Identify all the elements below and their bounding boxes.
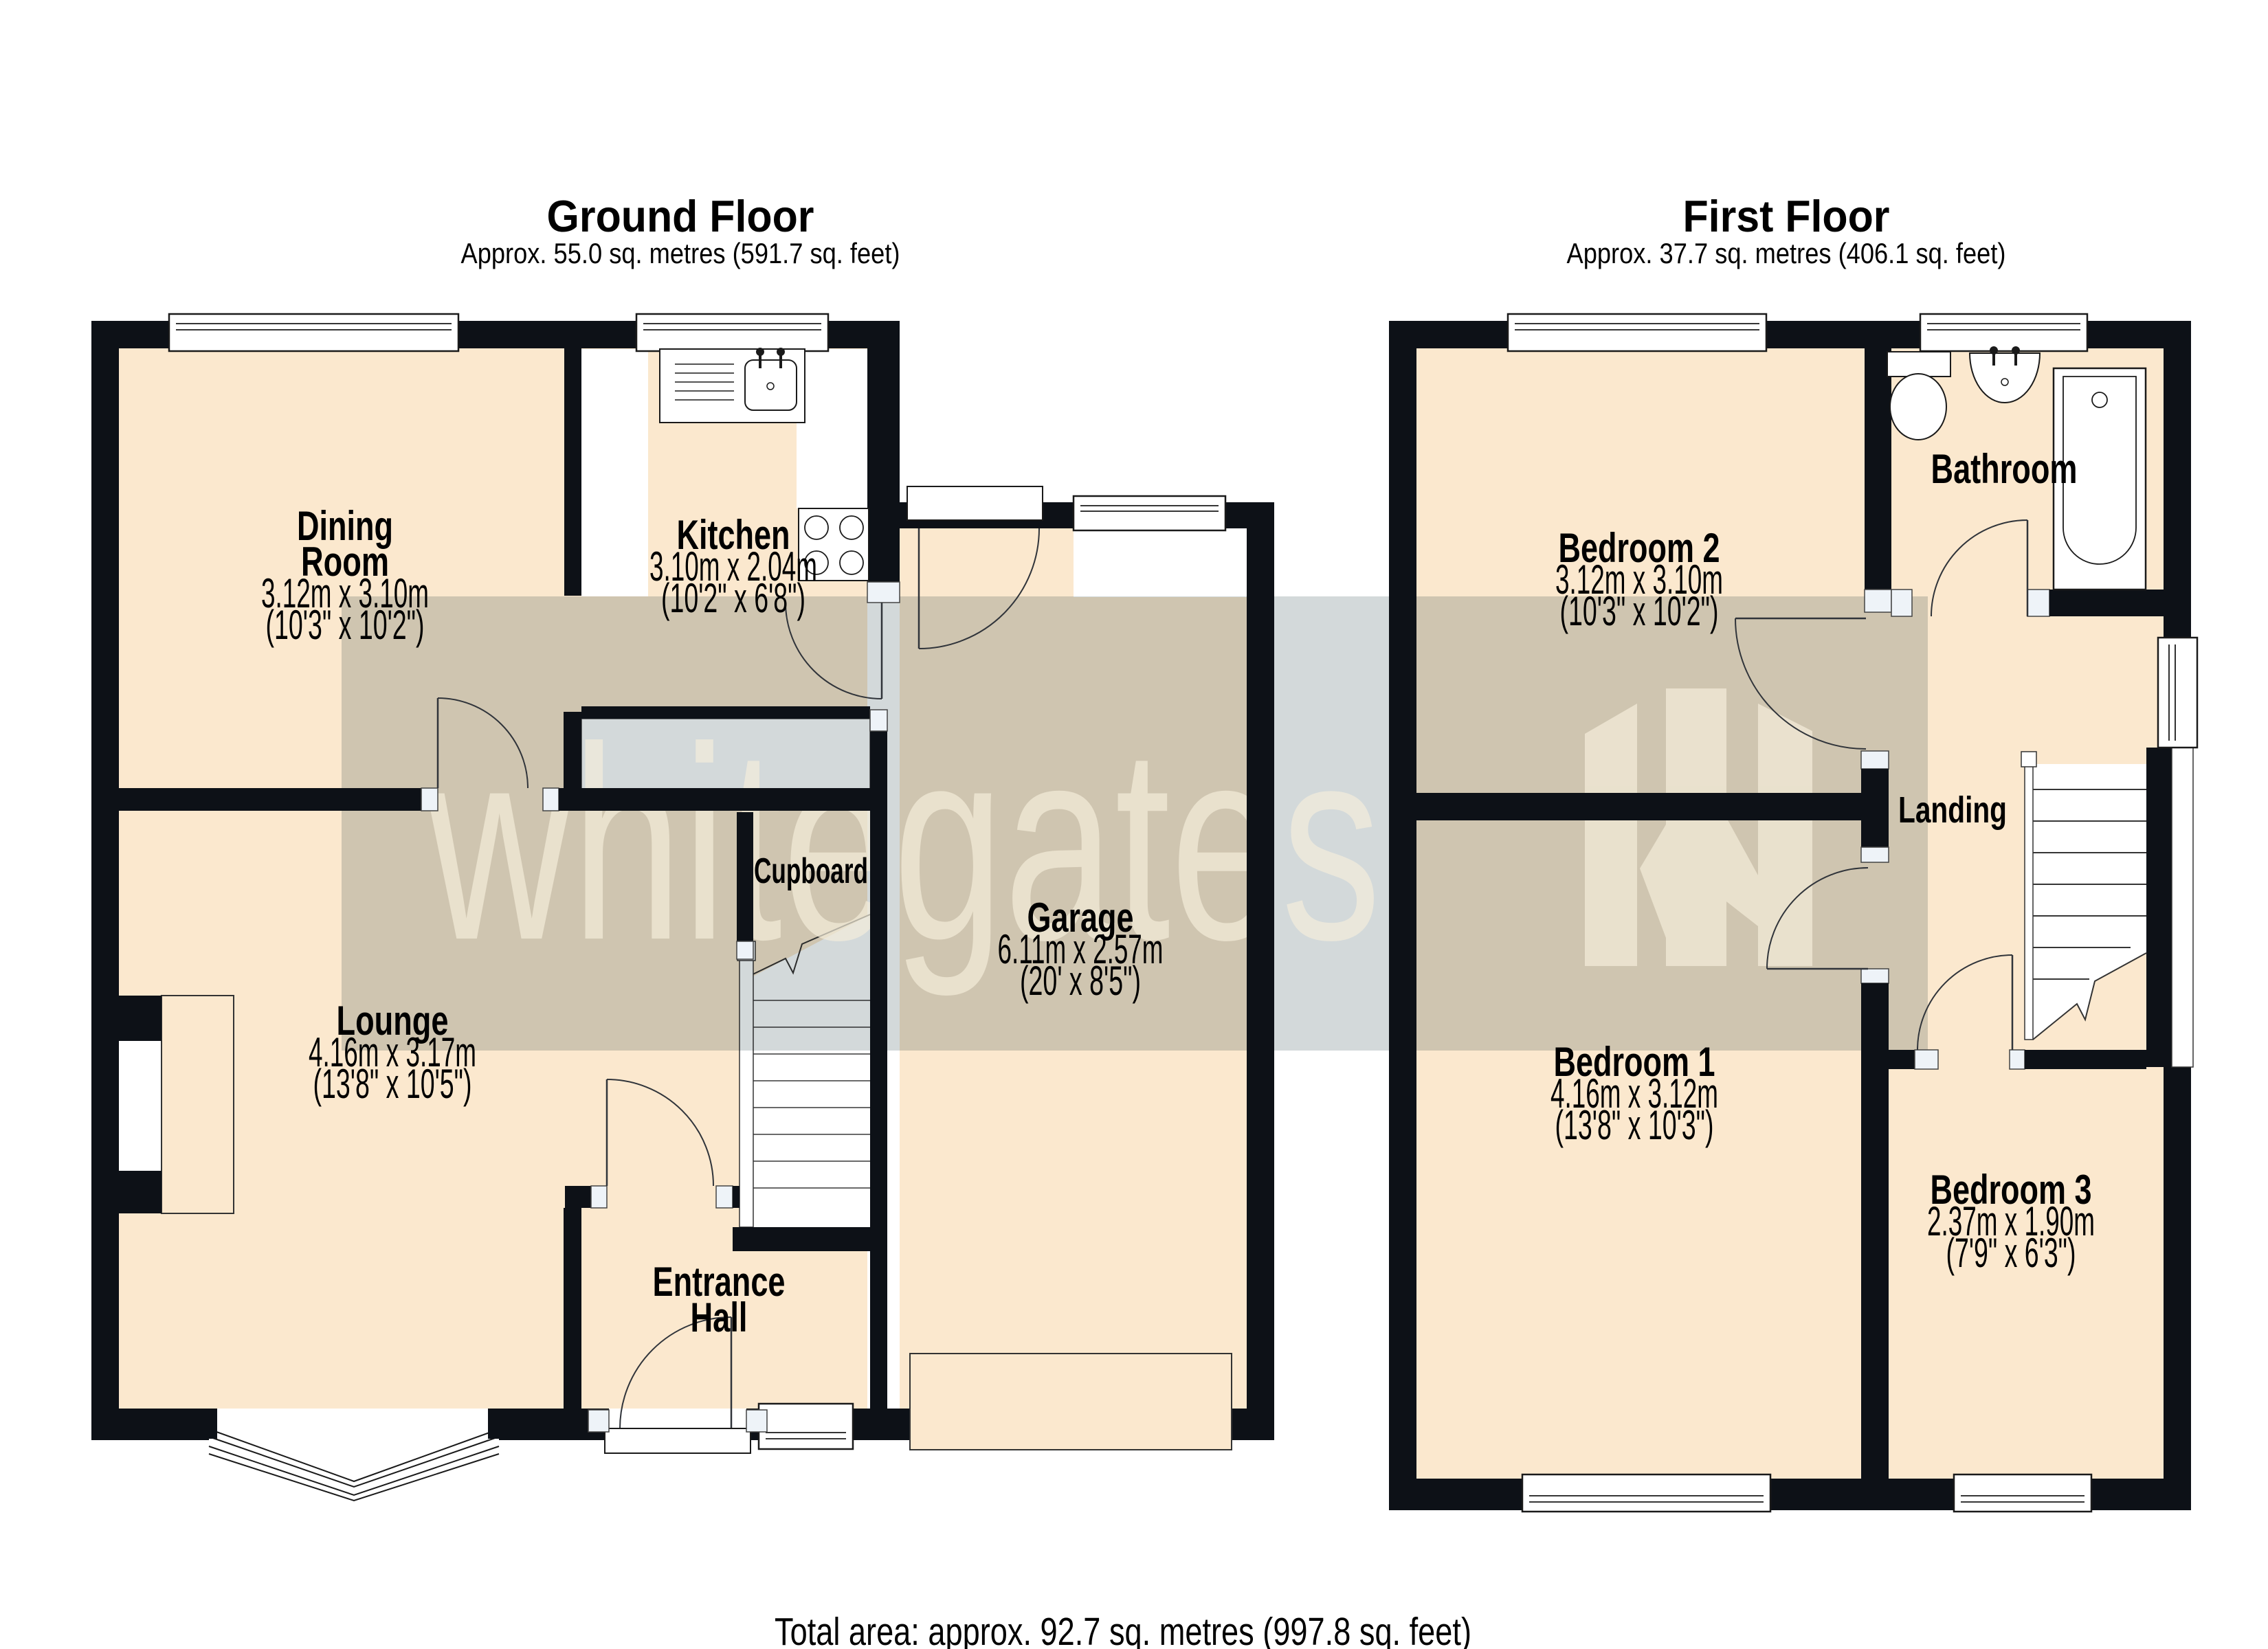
svg-text:(7'9" x 6'3"): (7'9" x 6'3") [1946,1230,2076,1276]
svg-text:Bathroom: Bathroom [1931,446,2078,492]
svg-text:(13'8" x 10'3"): (13'8" x 10'3") [1555,1102,1714,1148]
svg-text:Landing: Landing [1898,789,2007,831]
svg-text:Hall: Hall [691,1294,748,1340]
svg-text:Approx. 55.0 sq. metres (591.7: Approx. 55.0 sq. metres (591.7 sq. feet) [461,237,900,269]
svg-text:Ground Floor: Ground Floor [547,191,814,241]
svg-text:(10'3" x 10'2"): (10'3" x 10'2") [1560,588,1719,634]
svg-text:(10'2" x 6'8"): (10'2" x 6'8") [661,575,805,621]
svg-text:(10'3" x 10'2"): (10'3" x 10'2") [266,602,425,648]
svg-text:Total area: approx. 92.7 sq. m: Total area: approx. 92.7 sq. metres (997… [775,1610,1471,1649]
svg-text:Approx. 37.7 sq. metres (406.1: Approx. 37.7 sq. metres (406.1 sq. feet) [1567,237,2006,269]
svg-text:Cupboard: Cupboard [754,851,868,891]
svg-text:First Floor: First Floor [1683,191,1890,241]
svg-text:(20' x 8'5"): (20' x 8'5") [1020,958,1141,1004]
svg-text:(13'8" x 10'5"): (13'8" x 10'5") [313,1061,472,1107]
